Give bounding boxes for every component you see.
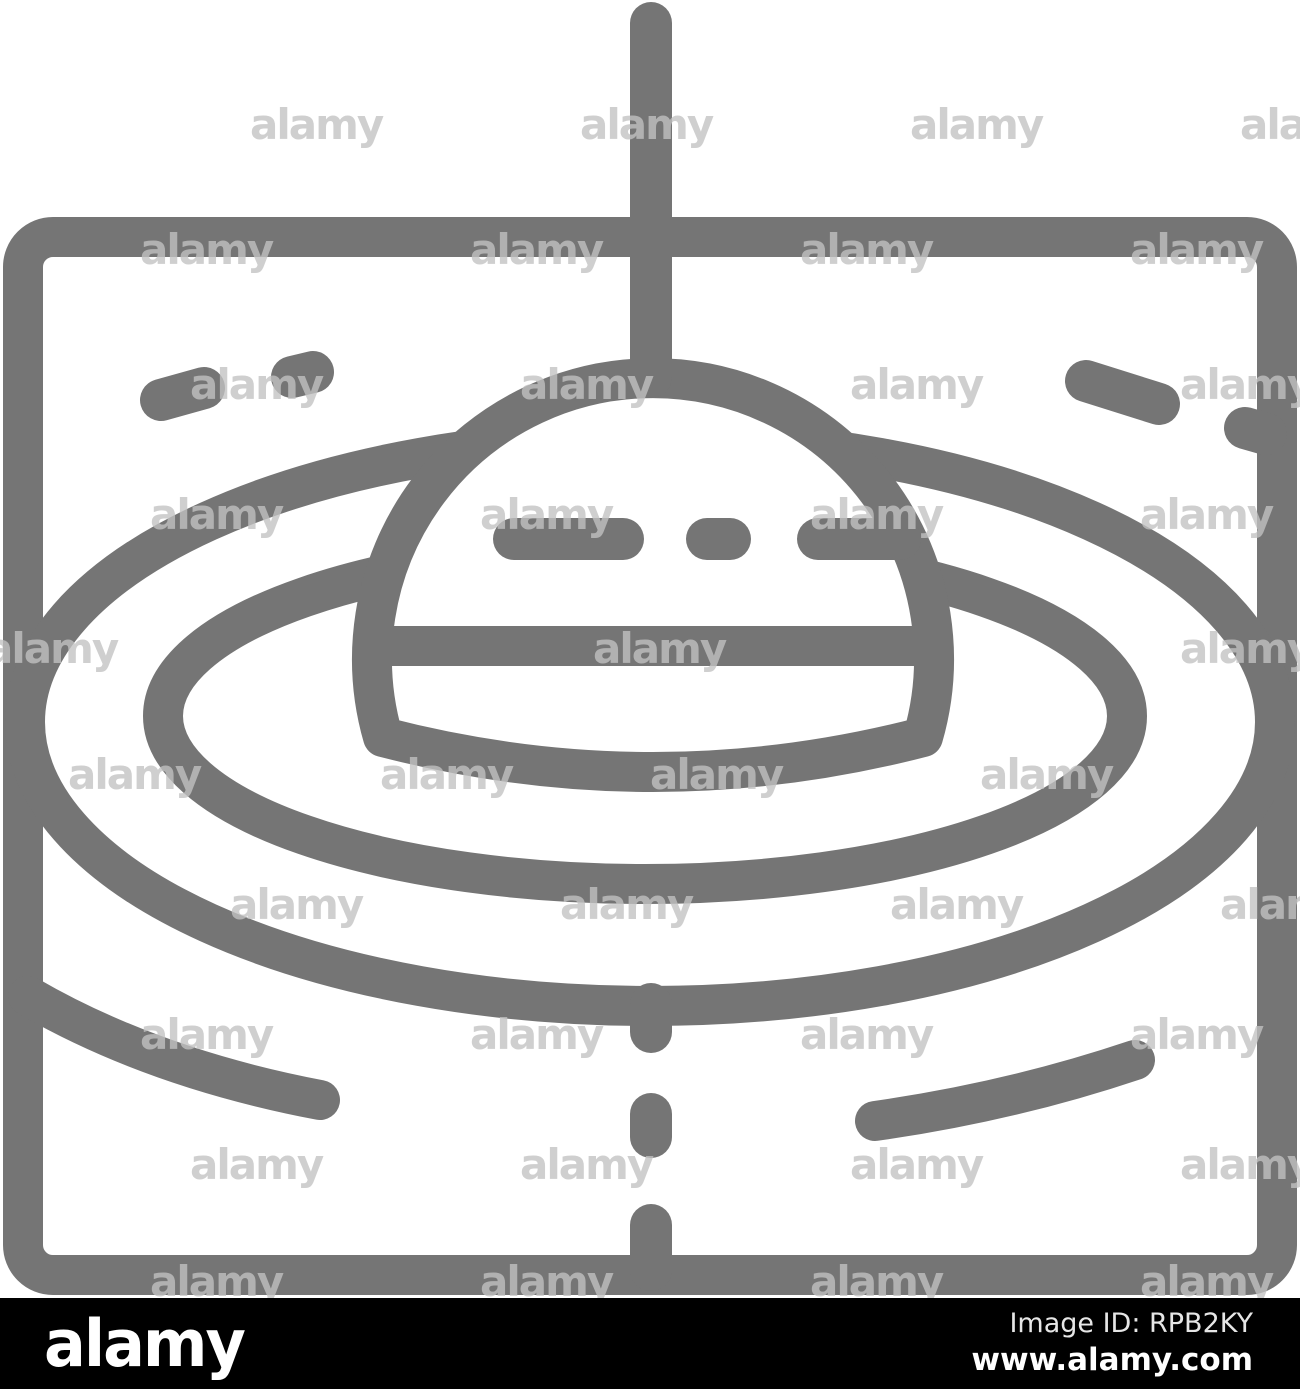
watermark-tile: alamy	[470, 225, 604, 274]
watermark-tile: alamy	[810, 490, 944, 539]
watermark-tile: alamy	[800, 1010, 934, 1059]
float-dome	[372, 378, 934, 772]
watermark-tile: alamy	[980, 750, 1114, 799]
watermark-tile: alamy	[480, 490, 614, 539]
watermark-tile: alamy	[140, 1010, 274, 1059]
watermark-tile: alamy	[850, 1140, 984, 1189]
watermark-tile: alamy	[560, 880, 694, 929]
watermark-tile: alamy	[1140, 1257, 1274, 1298]
watermark-tile: alamy	[520, 1140, 654, 1189]
watermark-tile: alamy	[1220, 880, 1300, 929]
watermark-tile: alamy	[250, 100, 384, 149]
watermark-tile: alamy	[890, 880, 1024, 929]
watermark-footer-bar: alamy Image ID: RPB2KY www.alamy.com	[0, 1298, 1300, 1389]
surface-dash-top-right-1	[1086, 381, 1159, 404]
watermark-tile: alamy	[1130, 225, 1264, 274]
watermark-tile: alamy	[380, 750, 514, 799]
watermark-tile: alamy	[150, 490, 284, 539]
alamy-url-text: www.alamy.com	[971, 1341, 1253, 1380]
watermark-tile: alamy	[593, 624, 727, 673]
watermark-tile: alamy	[910, 100, 1044, 149]
ripple-arc-bottom-right	[875, 1060, 1135, 1121]
watermark-tile: alamy	[580, 100, 714, 149]
watermark-tile: alamy	[1180, 360, 1300, 409]
watermark-tile: alamy	[1130, 1010, 1264, 1059]
image-id-text: Image ID: RPB2KY	[971, 1307, 1253, 1341]
watermark-tile: alamy	[68, 750, 202, 799]
watermark-tile: alamy	[650, 750, 784, 799]
watermark-tile: alamy	[520, 360, 654, 409]
watermark-tile: alamy	[190, 1140, 324, 1189]
watermark-tile: alamy	[800, 225, 934, 274]
watermark-tile: alamy	[0, 624, 119, 673]
watermark-tile: alamy	[140, 225, 274, 274]
surface-dash-top-right-2	[1245, 428, 1266, 434]
footer-text-block: Image ID: RPB2KY www.alamy.com	[971, 1307, 1253, 1380]
alamy-logo: alamy	[44, 1311, 244, 1376]
watermark-tile: alamy	[1180, 1140, 1300, 1189]
watermark-tile: alamy	[1140, 490, 1274, 539]
watermark-tile: alamy	[190, 360, 324, 409]
watermark-tile: alamy	[470, 1010, 604, 1059]
watermark-tile: alamy	[230, 880, 364, 929]
stock-image-preview: alamyalamyalamyalamyalamyalamyalamyalamy…	[0, 0, 1300, 1389]
watermark-tile: alamy	[1180, 624, 1300, 673]
watermark-tile: alamy	[810, 1257, 944, 1298]
float-water-ripples-icon: alamyalamyalamyalamyalamyalamyalamyalamy…	[0, 0, 1300, 1298]
watermark-tile: alamy	[850, 360, 984, 409]
watermark-tile: alamy	[150, 1257, 284, 1298]
watermark-tile: alamy	[480, 1257, 614, 1298]
watermark-tile: alamy	[1240, 100, 1300, 149]
